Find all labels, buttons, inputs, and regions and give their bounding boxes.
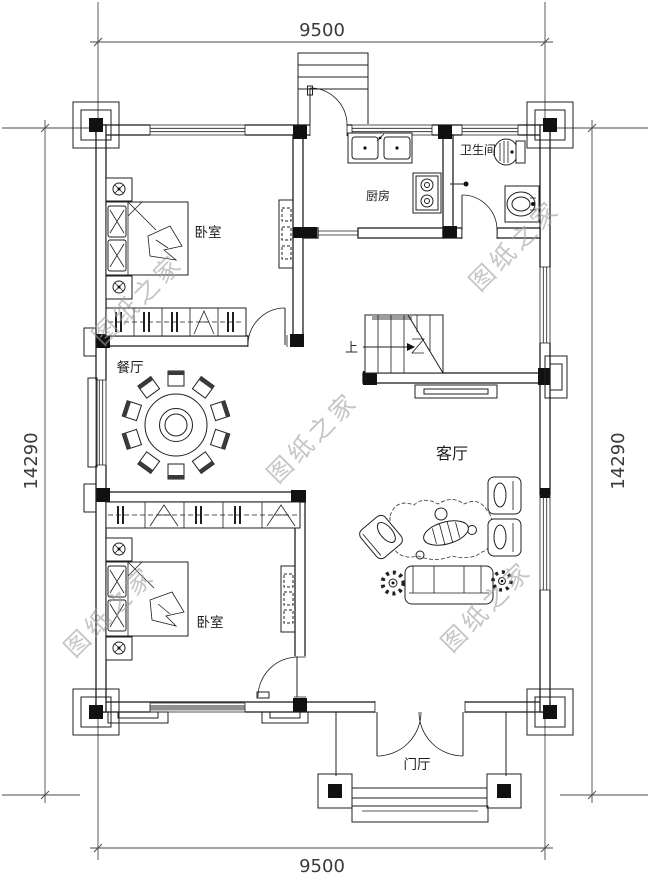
kitchen-doorway [318, 231, 358, 235]
porch-step [352, 806, 488, 822]
dimension-bottom: 9500 [90, 712, 553, 877]
room-label-bathroom: 卫生间 [460, 143, 496, 157]
stair-console [415, 385, 497, 398]
toilet-icon [494, 139, 525, 165]
dining-chair [211, 401, 230, 421]
window-living [539, 488, 551, 590]
floor-plan-page: 9500 9500 14290 14290 [0, 0, 650, 893]
armchair-icon [488, 477, 521, 514]
dining-chair [168, 464, 184, 479]
kitchen-sink-icon [348, 133, 412, 163]
window-stairwell [539, 267, 551, 343]
stairs: 上 [345, 315, 497, 398]
window-dining [88, 378, 107, 467]
dining-chair [138, 452, 160, 474]
room-label-kitchen: 厨房 [366, 188, 390, 203]
dining-chair [122, 401, 141, 421]
stove-icon [413, 173, 441, 213]
wardrobe-bottom [106, 502, 300, 528]
dining-table [145, 394, 207, 456]
watermark-text: 图纸之家 [261, 386, 364, 489]
nightstand-bottom-1 [106, 538, 132, 561]
room-label-foyer: 门厅 [404, 757, 431, 773]
nightstand-bottom-2 [106, 637, 132, 660]
dining-chair [192, 452, 214, 474]
dining-chair [192, 377, 214, 399]
dining-chair [122, 429, 141, 449]
window-bathroom [462, 124, 518, 136]
dining-chair [211, 429, 230, 449]
dining-chair [138, 377, 160, 399]
window-top-bedroom [150, 124, 245, 136]
dimension-top: 9500 [90, 2, 553, 125]
dining-chair [168, 371, 184, 386]
back-door [308, 86, 348, 136]
plant-icon [383, 573, 404, 594]
bottom-wall-trim-mid [262, 712, 308, 723]
dimension-left: 14290 [2, 120, 96, 803]
front-double-door [375, 701, 465, 756]
bedroom-top-door [248, 308, 287, 347]
stairs-up-label: 上 [345, 341, 358, 356]
nightstand-top-1 [106, 178, 132, 201]
room-label-living: 客厅 [436, 444, 468, 463]
room-label-bedroom-bottom: 卧室 [197, 614, 224, 631]
dresser-top [279, 200, 293, 268]
dimension-width-bottom: 9500 [299, 856, 345, 877]
dimension-height-right: 14290 [608, 432, 629, 489]
dimension-width-top: 9500 [299, 20, 345, 41]
porch-column-left [318, 774, 352, 808]
porch-column-right [487, 774, 521, 808]
dresser-bottom [281, 566, 295, 632]
armchair-icon [488, 519, 521, 556]
coffee-table-icon [421, 516, 471, 549]
room-label-bedroom-top: 卧室 [195, 224, 222, 241]
bedroom-bottom-door [257, 656, 306, 698]
armchair-icon [357, 513, 405, 561]
left-wall-pilaster-lower [84, 484, 96, 512]
dimension-height-left: 14290 [21, 432, 42, 489]
back-porch-steps [298, 53, 368, 125]
room-label-dining: 餐厅 [117, 360, 144, 376]
dimension-right: 14290 [554, 120, 648, 803]
floor-plan-svg: 9500 9500 14290 14290 [0, 0, 650, 893]
